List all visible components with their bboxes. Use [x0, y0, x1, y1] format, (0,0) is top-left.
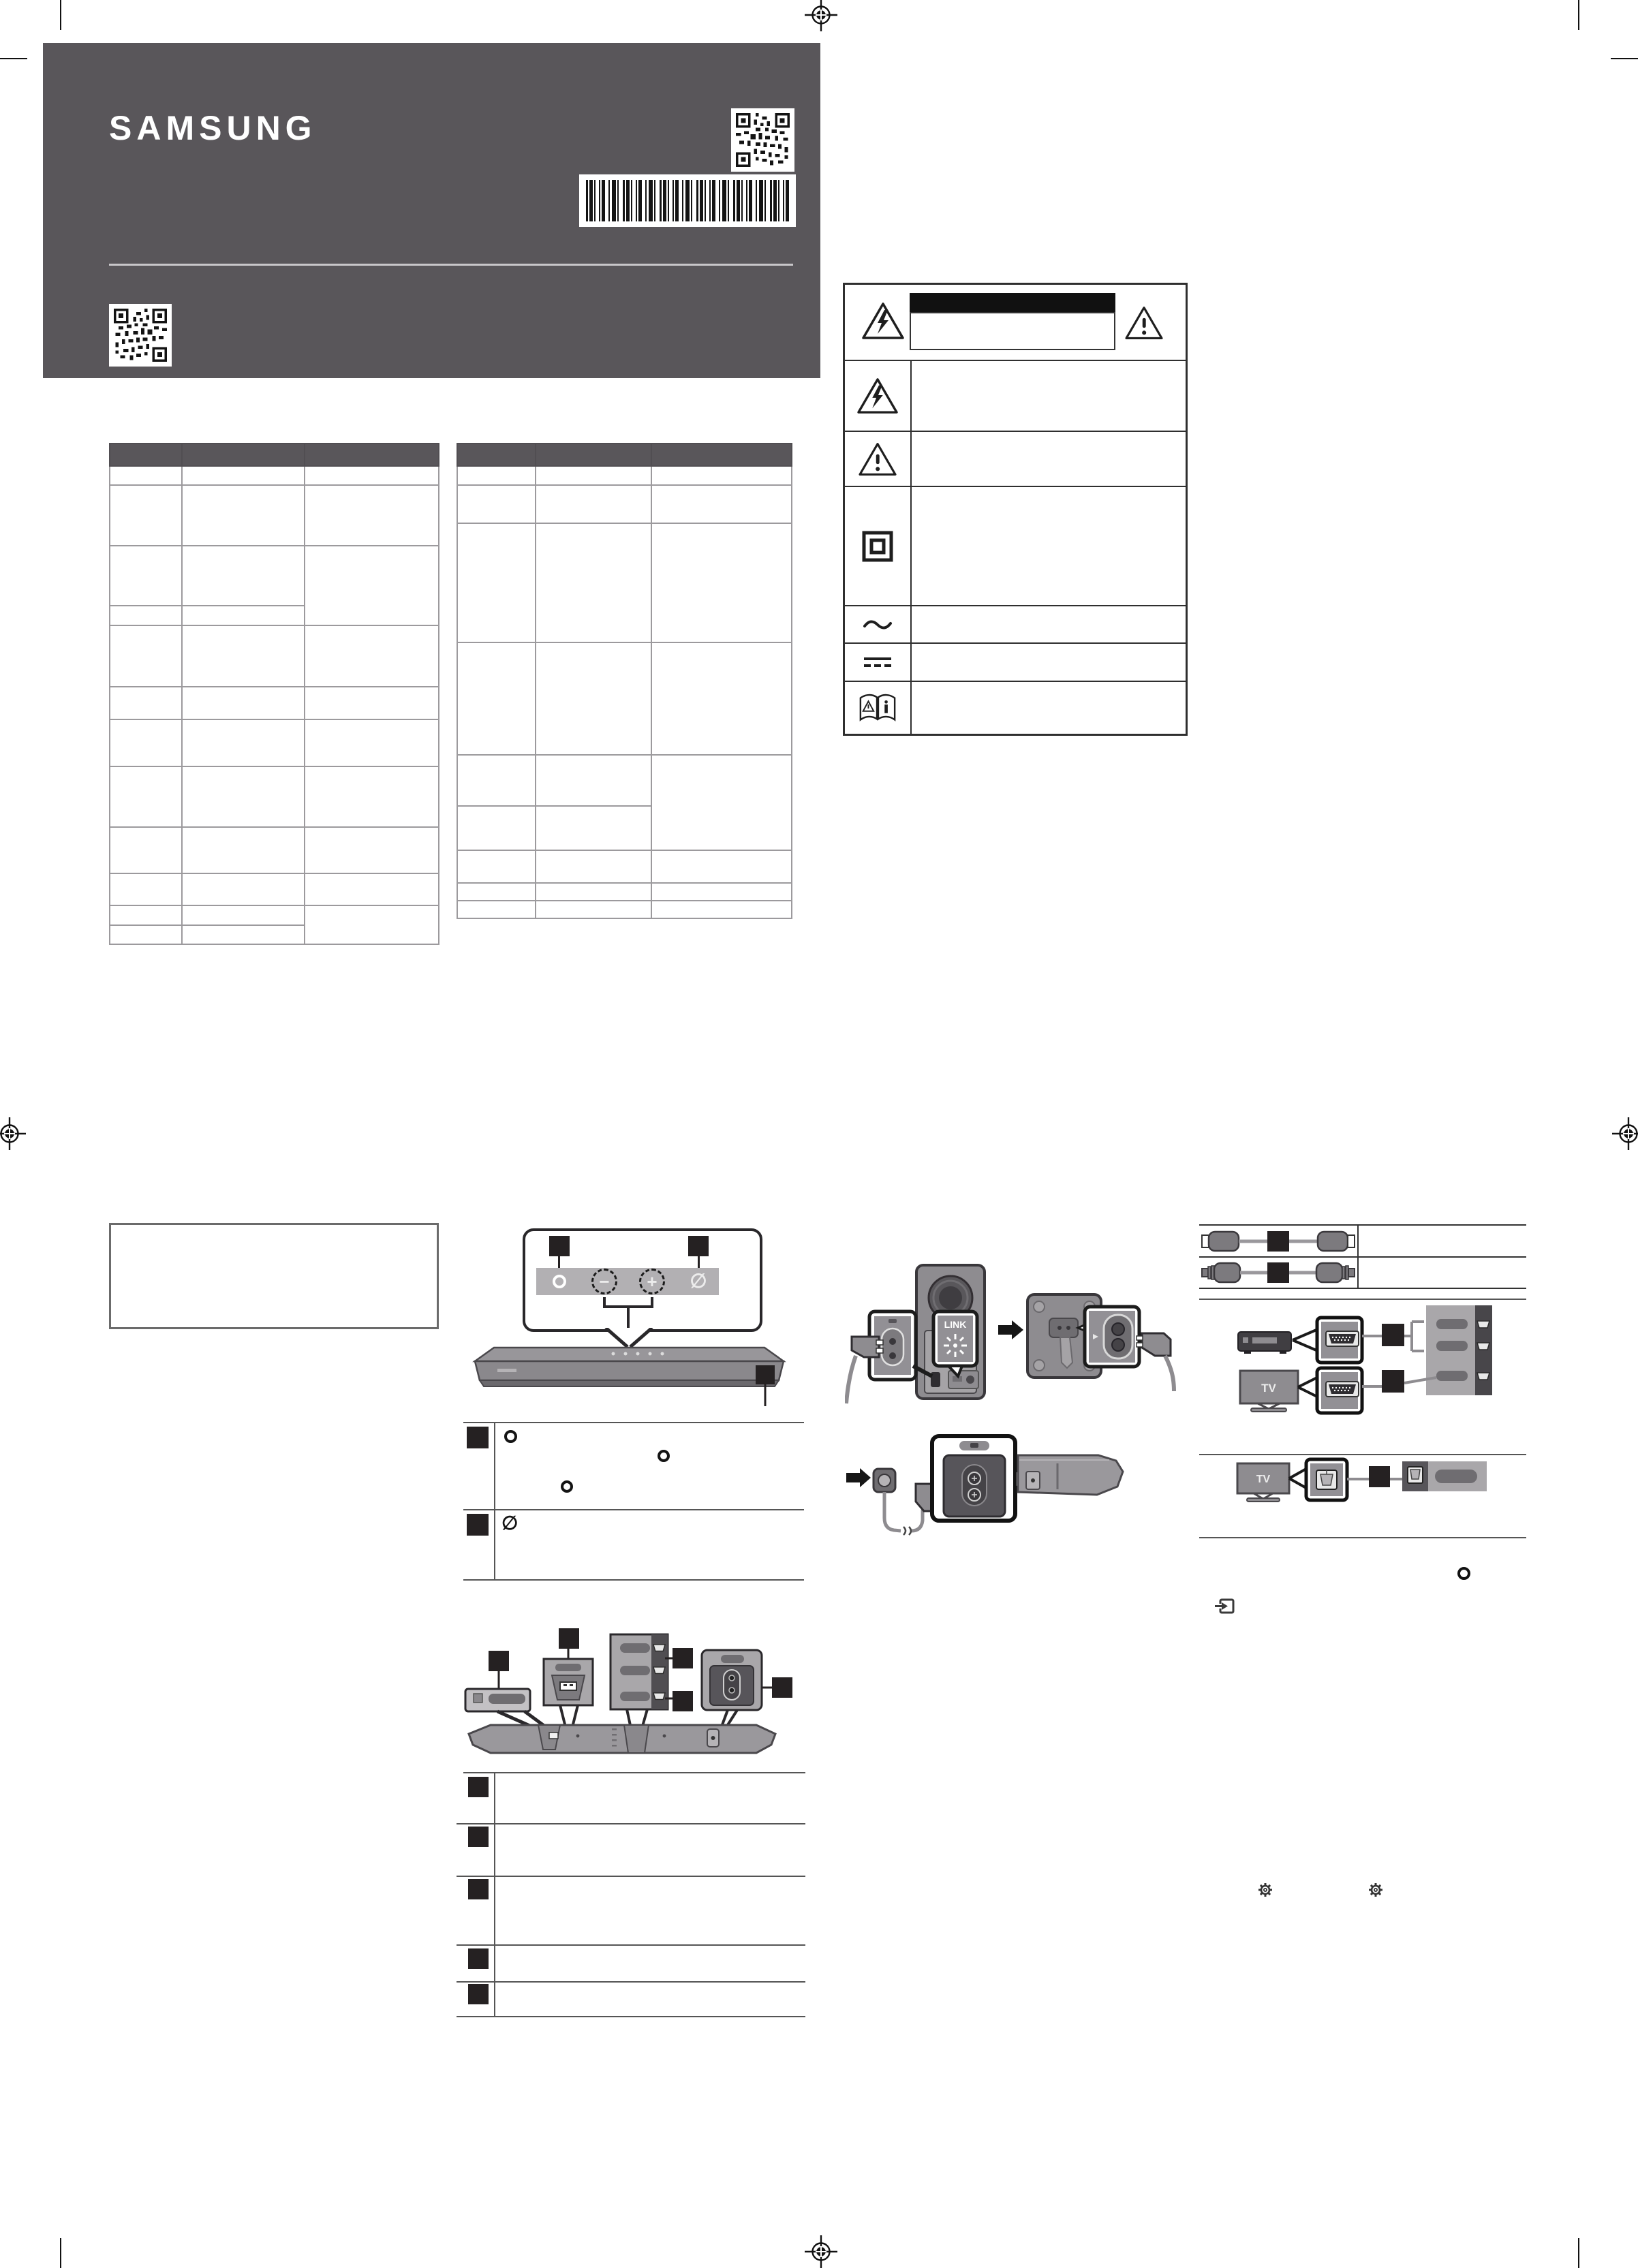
subwoofer-connection-diagram: LINK [845, 1260, 1199, 1407]
power-plug [1142, 1333, 1171, 1356]
callout-label-square [756, 1365, 775, 1384]
trim-mark [60, 0, 61, 30]
arrow-right-icon [846, 1468, 871, 1487]
class-ii-icon [845, 487, 912, 605]
note-box [109, 1223, 439, 1329]
table-row [457, 901, 792, 918]
cable-label-square [1382, 1324, 1404, 1346]
power-plug [852, 1337, 879, 1357]
mic-off-icon: ∅ [687, 1269, 709, 1294]
safety-row [845, 486, 1186, 605]
registration-mark-icon [0, 1117, 26, 1150]
trim-mark [1578, 2238, 1579, 2268]
volume-bracket [600, 1294, 661, 1330]
table-row [457, 883, 792, 901]
settings-gear-icon [1257, 1882, 1273, 1898]
safety-row [845, 605, 1186, 642]
list-label-square [467, 1514, 489, 1536]
table-row [457, 485, 792, 523]
safety-row [845, 642, 1186, 681]
trim-mark [1578, 0, 1579, 30]
safety-text [912, 432, 1186, 486]
barcode-icon [579, 174, 796, 227]
trim-mark [1611, 58, 1638, 59]
safety-row [845, 360, 1186, 431]
qr-code-icon [731, 108, 794, 172]
tv-label: TV [1256, 1474, 1271, 1485]
link-label: LINK [944, 1319, 967, 1330]
mic-off-icon: ∅ [501, 1512, 522, 1535]
safety-text [912, 682, 1186, 734]
multi-function-ring-icon [504, 1430, 517, 1443]
safety-text [912, 361, 1186, 431]
safety-text [912, 606, 1186, 642]
multi-function-ring-icon [561, 1480, 573, 1493]
spec-table-1 [109, 443, 439, 945]
qr-code-icon [109, 304, 172, 367]
table-row [110, 466, 439, 485]
multi-function-ring-icon [1457, 1567, 1470, 1580]
callout-label-square [688, 1236, 709, 1256]
hdmi-connection-diagram: TV [1199, 1301, 1526, 1453]
cable-list [1199, 1224, 1526, 1289]
safety-row [845, 431, 1186, 486]
registration-mark-icon [805, 0, 837, 31]
cable-label-square [1382, 1370, 1404, 1393]
dc-voltage-icon [845, 644, 912, 681]
callout-label-square [549, 1236, 570, 1256]
table-row [457, 755, 792, 806]
brand-logo: SAMSUNG [109, 108, 317, 148]
safety-text [912, 644, 1186, 681]
button-description-list: ∅ [463, 1422, 804, 1581]
tv-label: TV [1261, 1382, 1276, 1395]
optical-cable-icon [1201, 1258, 1356, 1288]
table-header-row [457, 444, 792, 466]
safety-row [845, 681, 1186, 734]
table-row [110, 485, 439, 546]
multi-function-ring-icon [658, 1450, 670, 1462]
table-row [110, 687, 439, 719]
trim-mark [60, 2238, 61, 2268]
table-row [110, 873, 439, 905]
caution-black-bar [910, 293, 1115, 312]
cable-label-square [1369, 1466, 1390, 1487]
port-description-list [457, 1772, 805, 2017]
manual-page: SAMSUNG [0, 0, 1638, 2268]
exclamation-triangle-icon [1124, 305, 1164, 341]
list-label-square [468, 1984, 489, 2004]
registration-mark-icon [805, 2235, 837, 2268]
volume-plus-icon: + [639, 1269, 665, 1294]
port-label-square [559, 1628, 579, 1649]
bolt-triangle-icon [861, 301, 905, 341]
soundbar-logo [497, 1369, 516, 1372]
safety-symbols-table [843, 283, 1188, 736]
registration-mark-icon [1612, 1117, 1638, 1150]
exclamation-triangle-icon [845, 432, 912, 486]
safety-text [912, 487, 1186, 605]
list-label-square [468, 1879, 489, 1899]
safety-row-caution [845, 285, 1186, 360]
hdmi-cable-icon [1201, 1226, 1356, 1256]
bottom-ports-diagram [457, 1625, 811, 1765]
list-label-square [467, 1427, 489, 1448]
table-row [110, 905, 439, 925]
list-label-square [468, 1827, 489, 1847]
soundbar-front-view [467, 1341, 790, 1409]
list-label-square [468, 1777, 489, 1797]
table-row [457, 850, 792, 883]
table-row [110, 766, 439, 827]
plus-glyph: + [647, 1271, 657, 1292]
table-header-row [110, 444, 439, 466]
table-row [457, 523, 792, 642]
refer-to-manual-icon [845, 682, 912, 734]
soundbar-bottom-view [469, 1725, 775, 1753]
table-row [110, 719, 439, 766]
wall-power-diagram [845, 1431, 1199, 1547]
bolt-triangle-icon [845, 361, 912, 431]
callout-line [698, 1256, 700, 1268]
spec-table-2 [457, 443, 792, 919]
header-banner: SAMSUNG [43, 43, 820, 378]
callout-line [558, 1256, 560, 1268]
trim-mark [0, 58, 27, 59]
caution-box [910, 312, 1115, 350]
table-row [110, 625, 439, 687]
header-divider [109, 264, 793, 266]
multi-function-ring-icon [553, 1275, 566, 1288]
ac-voltage-icon [845, 606, 912, 642]
top-panel-strip: − + ∅ [536, 1268, 719, 1295]
volume-minus-icon: − [591, 1269, 617, 1294]
table-row [457, 466, 792, 485]
source-input-icon [1214, 1597, 1236, 1616]
settings-gear-icon [1367, 1882, 1384, 1898]
table-row [110, 546, 439, 606]
minus-glyph: − [599, 1271, 609, 1292]
table-row [457, 642, 792, 755]
list-label-square [468, 1948, 489, 1969]
arrow-right-icon [998, 1320, 1023, 1339]
optical-connection-diagram: TV [1199, 1455, 1526, 1536]
table-row [110, 827, 439, 873]
